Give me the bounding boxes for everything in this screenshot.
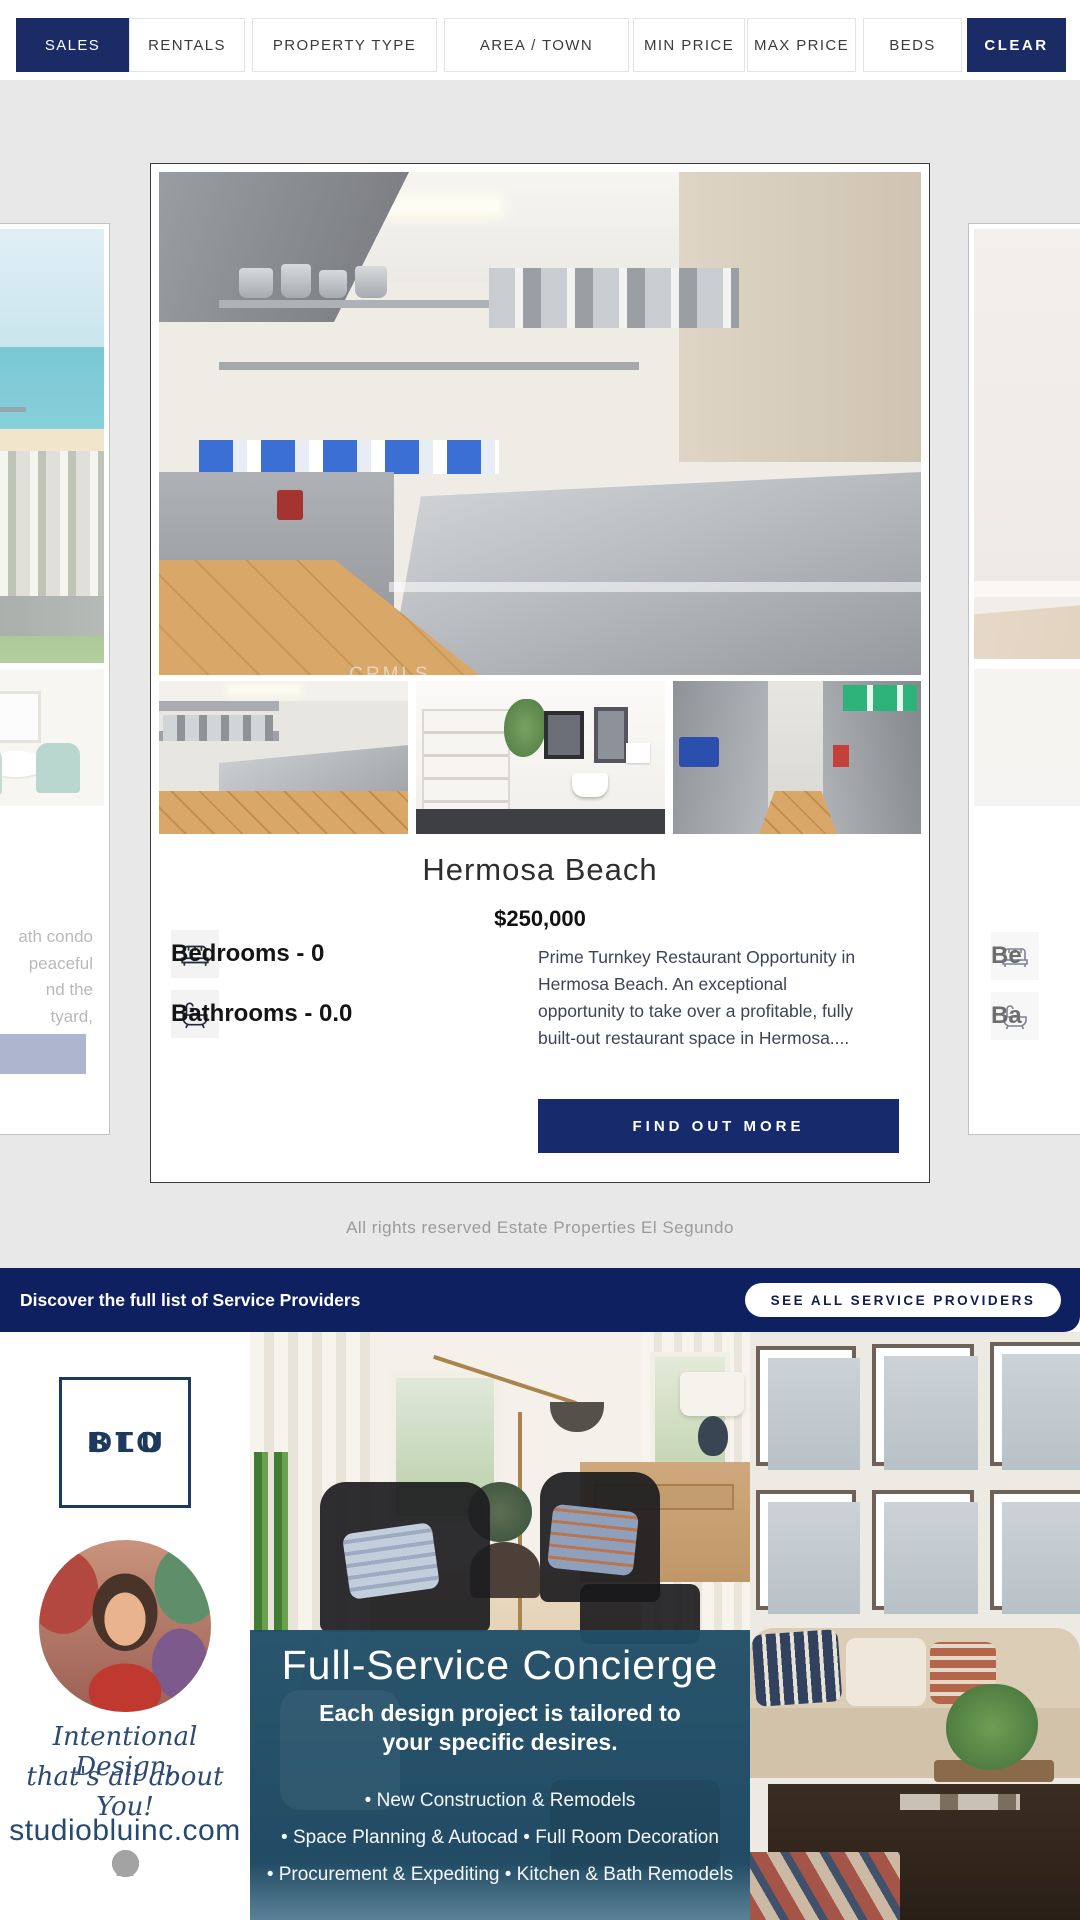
dining-chair-shape bbox=[36, 743, 80, 793]
filter-button-min-price[interactable]: MIN PRICE bbox=[633, 18, 745, 72]
filter-button-rentals[interactable]: RENTALS bbox=[129, 18, 245, 72]
aerial-buildings bbox=[0, 596, 104, 636]
overlay-bullet-1: • New Construction & Remodels bbox=[250, 1790, 750, 1812]
listing-main-photo[interactable]: CRMLS bbox=[159, 172, 921, 675]
mls-watermark: CRMLS bbox=[159, 664, 621, 675]
aerial-beach bbox=[0, 429, 104, 451]
gallery-frame bbox=[990, 1342, 1080, 1466]
next-listing-photo[interactable] bbox=[974, 229, 1080, 659]
beach-photo-shape bbox=[884, 1502, 978, 1614]
gallery-frame bbox=[756, 1346, 856, 1466]
wall-signs-shape bbox=[199, 440, 499, 474]
listing-thumbnail-1[interactable] bbox=[159, 681, 408, 834]
concierge-overlay-panel: Full-Service Concierge Each design proje… bbox=[250, 1630, 750, 1920]
filter-button-beds[interactable]: BEDS bbox=[863, 18, 962, 72]
listing-description: Prime Turnkey Restaurant Opportunity in … bbox=[538, 944, 874, 1052]
next-listing-card[interactable]: Be Ba bbox=[968, 223, 1080, 1135]
ad-right-photo bbox=[750, 1332, 1080, 1920]
previous-listing-description-fragment: ath condo peaceful nd the tyard, bbox=[0, 924, 93, 1030]
beach-photo-shape bbox=[768, 1502, 860, 1614]
patterned-rug-shape bbox=[750, 1852, 900, 1920]
aerial-pier bbox=[0, 407, 26, 412]
red-container-shape bbox=[833, 745, 849, 767]
wood-floor-shape bbox=[974, 595, 1080, 659]
beach-photo-shape bbox=[768, 1358, 860, 1470]
overlay-bullet-3: • Procurement & Expediting • Kitchen & B… bbox=[250, 1864, 750, 1886]
gallery-frame bbox=[872, 1344, 974, 1466]
thumb-tile-floor-shape bbox=[159, 791, 408, 834]
overlay-subtitle-line1: Each design project is tailored to bbox=[250, 1700, 750, 1727]
towel-dispenser-shape bbox=[626, 743, 650, 763]
listing-thumbnail-2[interactable] bbox=[416, 681, 665, 834]
overlay-title: Full-Service Concierge bbox=[250, 1642, 750, 1689]
studio-blu-logo: S T U D I O B L U bbox=[59, 1377, 191, 1508]
banner-message: Discover the full list of Service Provid… bbox=[20, 1268, 360, 1332]
next-listing-bedrooms-label: Be bbox=[991, 942, 1022, 970]
pots-on-shelf-shape bbox=[489, 268, 739, 328]
room-wall-shape bbox=[974, 229, 1080, 589]
filter-button-area-town[interactable]: AREA / TOWN bbox=[444, 18, 629, 72]
next-listing-bathrooms-label: Ba bbox=[991, 1002, 1022, 1030]
thumb-shelf-shape bbox=[159, 701, 279, 711]
table-lamp-shade-shape bbox=[680, 1372, 744, 1416]
pot-shape bbox=[319, 270, 347, 298]
listing-thumbnail-3[interactable] bbox=[673, 681, 921, 834]
listing-town-title: Hermosa Beach bbox=[151, 852, 929, 888]
bathrooms-label: Bathrooms - 0.0 bbox=[171, 1000, 352, 1028]
aerial-sky bbox=[0, 229, 104, 349]
overlay-subtitle-line2: your specific desires. bbox=[250, 1729, 750, 1756]
baseboard-shape bbox=[974, 581, 1080, 597]
gallery-frame bbox=[756, 1490, 856, 1610]
striped-pillow-shape bbox=[752, 1629, 843, 1707]
ad-website-link[interactable]: studiobluinc.com bbox=[0, 1814, 250, 1848]
sink-shape bbox=[572, 773, 608, 797]
thumb-pots-shape bbox=[163, 715, 273, 741]
studio-blu-advertisement[interactable]: S T U D I O B L U Intentional Design, th… bbox=[0, 1332, 1080, 1920]
white-shelving-shape bbox=[422, 709, 510, 819]
service-providers-banner: Discover the full list of Service Provid… bbox=[0, 1268, 1080, 1332]
listing-carousel: ath condo peaceful nd the tyard, bbox=[0, 80, 1080, 1268]
striped-pillow-shape bbox=[547, 1504, 639, 1577]
overlay-bullet-2: • Space Planning & Autocad • Full Room D… bbox=[250, 1827, 750, 1849]
snake-plant-shape bbox=[254, 1452, 290, 1642]
table-lamp-base-shape bbox=[698, 1416, 728, 1456]
logo-row: B L U bbox=[87, 1424, 162, 1462]
filter-button-property-type[interactable]: PROPERTY TYPE bbox=[252, 18, 437, 72]
beach-photo-shape bbox=[884, 1356, 978, 1470]
green-bins-shape bbox=[843, 685, 917, 711]
active-listing-card: CRMLS bbox=[150, 163, 930, 1183]
previous-listing-photo[interactable] bbox=[0, 229, 104, 663]
designer-portrait-photo bbox=[39, 1540, 211, 1712]
pot-shape bbox=[281, 264, 311, 298]
wall-art-shape bbox=[0, 691, 41, 743]
previous-listing-content: ath condo peaceful nd the tyard, bbox=[0, 224, 109, 1134]
ad-left-column: S T U D I O B L U Intentional Design, th… bbox=[0, 1332, 250, 1920]
filter-button-clear[interactable]: CLEAR bbox=[967, 18, 1066, 72]
books-on-table-shape bbox=[900, 1794, 1020, 1810]
gallery-frame bbox=[872, 1490, 974, 1610]
ad-tagline-line2: that's all about You! bbox=[0, 1762, 250, 1822]
pot-shape bbox=[239, 268, 273, 298]
aerial-ocean bbox=[0, 347, 104, 432]
mirror-shape bbox=[594, 707, 628, 763]
copyright-text: All rights reserved Estate Properties El… bbox=[0, 1218, 1080, 1238]
previous-listing-cta-fragment[interactable] bbox=[0, 1034, 86, 1074]
thumb-light-shape bbox=[229, 687, 299, 693]
previous-listing-thumbnail[interactable] bbox=[0, 669, 104, 806]
beach-photo-shape bbox=[1002, 1502, 1080, 1614]
aerial-city bbox=[0, 451, 104, 596]
red-machine-shape bbox=[277, 490, 303, 520]
pot-shape bbox=[355, 266, 387, 298]
floor-lamp-shade-shape bbox=[550, 1402, 604, 1432]
blue-sign-shape bbox=[679, 737, 719, 767]
filter-button-max-price[interactable]: MAX PRICE bbox=[747, 18, 856, 72]
pillow-shape bbox=[846, 1638, 926, 1706]
find-out-more-button[interactable]: FIND OUT MORE bbox=[538, 1099, 899, 1153]
next-listing-content: Be Ba bbox=[969, 224, 1080, 1134]
next-listing-thumbnail[interactable] bbox=[974, 669, 1080, 806]
aerial-park bbox=[0, 636, 104, 663]
ad-middle-photo: Full-Service Concierge Each design proje… bbox=[250, 1332, 750, 1920]
filter-bar: SALES RENTALS PROPERTY TYPE AREA / TOWN … bbox=[0, 0, 1080, 80]
framed-art-shape bbox=[544, 711, 584, 759]
steel-counter-shape bbox=[389, 472, 921, 675]
filter-button-sales[interactable]: SALES bbox=[16, 18, 129, 72]
bedrooms-label: Bedrooms - 0 bbox=[171, 940, 324, 968]
previous-listing-card[interactable]: ath condo peaceful nd the tyard, bbox=[0, 223, 110, 1135]
dark-floor-shape bbox=[416, 809, 665, 834]
counter-highlight-shape bbox=[389, 582, 921, 592]
real-estate-listing-page: SALES RENTALS PROPERTY TYPE AREA / TOWN … bbox=[0, 0, 1080, 1920]
gallery-frame bbox=[990, 1490, 1080, 1610]
listing-price: $250,000 bbox=[151, 906, 929, 932]
see-all-service-providers-button[interactable]: SEE ALL SERVICE PROVIDERS bbox=[745, 1283, 1061, 1317]
beach-photo-shape bbox=[1002, 1354, 1080, 1470]
striped-pillow-shape bbox=[342, 1522, 440, 1600]
